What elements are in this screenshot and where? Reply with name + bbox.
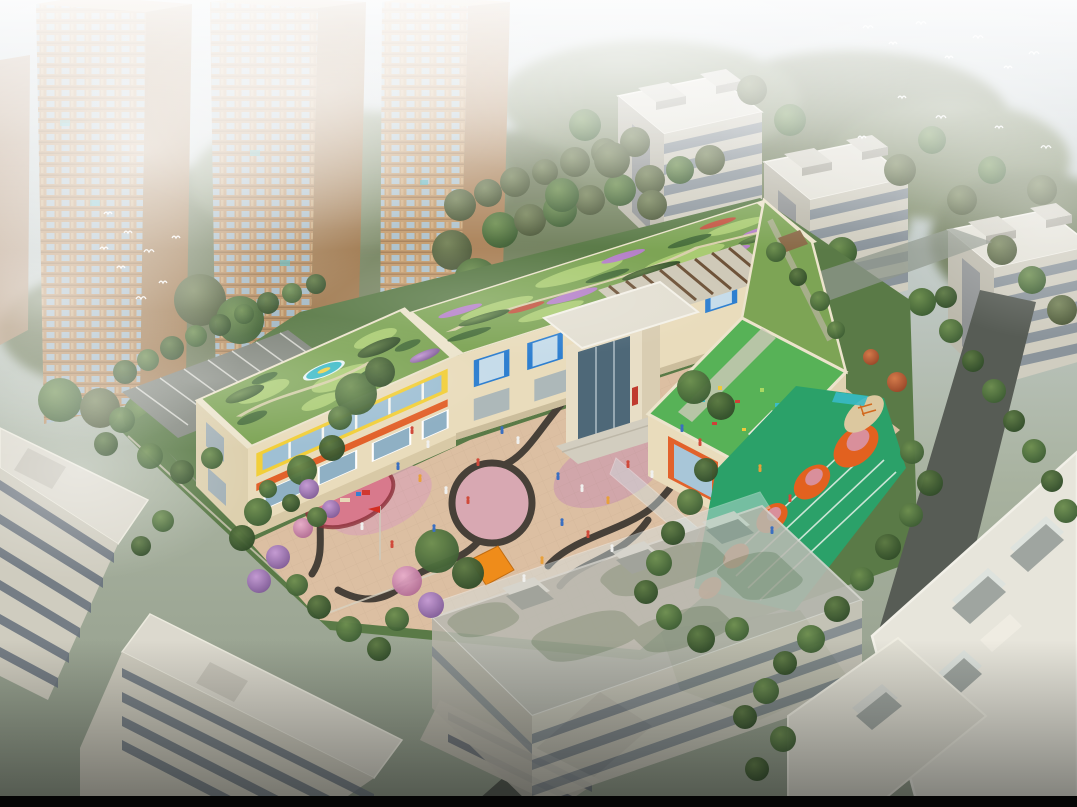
- tree: [962, 350, 984, 372]
- person-figure: [360, 522, 363, 530]
- person-figure: [758, 464, 761, 472]
- tree: [1003, 410, 1025, 432]
- tree: [247, 569, 271, 593]
- tree: [939, 319, 963, 343]
- person-figure: [444, 486, 447, 494]
- person-figure: [626, 460, 629, 468]
- person-figure: [476, 458, 479, 466]
- person-figure: [680, 424, 683, 432]
- person-figure: [560, 518, 563, 526]
- person-figure: [390, 540, 393, 548]
- person-figure: [426, 440, 429, 448]
- entrance-red-sign: [632, 386, 638, 406]
- tree: [917, 470, 943, 496]
- tree: [1054, 499, 1077, 523]
- tree: [810, 291, 830, 311]
- tree: [850, 567, 874, 591]
- tree: [266, 545, 290, 569]
- tree: [707, 392, 735, 420]
- tree: [415, 529, 459, 573]
- tree: [307, 595, 331, 619]
- tree: [286, 574, 308, 596]
- tree: [694, 458, 718, 482]
- tree: [824, 596, 850, 622]
- tree: [244, 498, 272, 526]
- tree: [677, 489, 703, 515]
- person-figure: [650, 470, 653, 478]
- person-figure: [610, 544, 613, 552]
- tree: [1041, 470, 1063, 492]
- tree: [789, 268, 807, 286]
- tree: [725, 617, 749, 641]
- person-figure: [432, 524, 435, 532]
- person-figure: [788, 494, 791, 502]
- person-figure: [606, 496, 609, 504]
- bottom-black-bar: [0, 796, 1077, 807]
- person-figure: [396, 462, 399, 470]
- tree: [299, 479, 319, 499]
- tree: [982, 379, 1006, 403]
- tree: [452, 557, 484, 589]
- tree: [827, 321, 845, 339]
- tree: [418, 592, 444, 618]
- tree: [282, 494, 300, 512]
- tree: [392, 566, 422, 596]
- person-figure: [522, 574, 525, 582]
- tree: [259, 480, 277, 498]
- person-figure: [580, 484, 583, 492]
- tree: [656, 604, 682, 630]
- person-figure: [466, 496, 469, 504]
- architectural-rendering: Aerial rendering of a U-shaped kindergar…: [0, 0, 1077, 807]
- tree: [385, 607, 409, 631]
- toy-car: [362, 490, 370, 495]
- tree: [336, 616, 362, 642]
- person-figure: [556, 472, 559, 480]
- tree: [1022, 439, 1046, 463]
- person-figure: [586, 530, 589, 538]
- tree: [661, 521, 685, 545]
- tree: [307, 507, 327, 527]
- tree: [900, 440, 924, 464]
- person-figure: [698, 438, 701, 446]
- tree: [677, 370, 711, 404]
- person-figure: [540, 556, 543, 564]
- person-figure: [500, 426, 503, 434]
- play-structure-blue: [356, 492, 361, 496]
- tree: [899, 503, 923, 527]
- bottom-shade: [0, 640, 1077, 807]
- tree: [634, 580, 658, 604]
- person-figure: [516, 436, 519, 444]
- person-figure: [770, 526, 773, 534]
- person-figure: [418, 474, 421, 482]
- tree: [875, 534, 901, 560]
- tree: [887, 372, 907, 392]
- tree: [229, 525, 255, 551]
- plaza-center-circle: [452, 463, 532, 543]
- tree: [646, 550, 672, 576]
- play-slide-ramp: [340, 498, 350, 502]
- tree: [863, 349, 879, 365]
- rendering-canvas: [0, 0, 1077, 807]
